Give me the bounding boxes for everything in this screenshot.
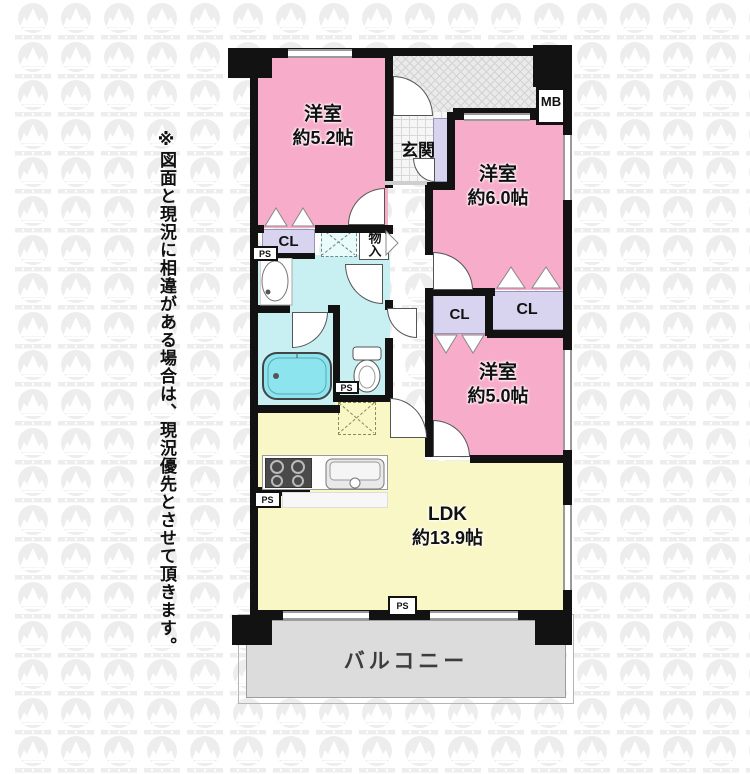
- folding-door-marker: [434, 334, 488, 354]
- floor-plan: PS PS PS PS MB 洋室 約5.2帖 洋室 約6.0帖 洋室 約5.0…: [0, 0, 750, 750]
- entrance-text: 玄関: [401, 136, 435, 161]
- window: [288, 49, 352, 58]
- ps-text: PS: [396, 601, 408, 611]
- wall: [425, 288, 433, 338]
- ps-text: PS: [261, 495, 273, 505]
- bathtub: [262, 352, 332, 400]
- window-balcony: [283, 611, 369, 620]
- wall-left: [250, 78, 258, 612]
- closet-label: CL: [262, 229, 315, 253]
- bedroom-1-label: 洋室 約5.2帖: [263, 100, 383, 152]
- pipe-space-label: PS: [334, 381, 359, 394]
- wall: [385, 338, 393, 400]
- ps-text: PS: [340, 383, 352, 393]
- pipe-space-label: PS: [388, 596, 417, 616]
- mb-text: MB: [541, 94, 561, 109]
- x-mark: [339, 403, 374, 433]
- window: [464, 113, 530, 121]
- wall: [333, 395, 390, 402]
- stove: [265, 458, 312, 488]
- room-size: 約13.9帖: [412, 527, 483, 550]
- wall: [250, 405, 340, 413]
- cl-text: CL: [279, 233, 299, 250]
- window: [563, 135, 572, 200]
- wall: [425, 334, 433, 457]
- room-size: 約5.0帖: [467, 385, 528, 408]
- wall-corner: [535, 615, 572, 645]
- wall: [385, 48, 393, 188]
- ldk-door-arc: [390, 398, 427, 438]
- disclaimer-text: ※図面と現況に相違がある場合は、現況優先とさせて頂きます。: [136, 130, 176, 655]
- room-name: 洋室: [479, 163, 517, 187]
- balcony-label: バルコニー: [246, 646, 566, 674]
- room-size: 約6.0帖: [467, 187, 528, 210]
- window-balcony: [430, 611, 518, 620]
- wall: [470, 455, 572, 463]
- wall: [487, 330, 572, 338]
- wall-corner: [533, 45, 572, 87]
- entrance-step: [385, 181, 427, 185]
- cl-text: CL: [450, 306, 470, 323]
- room-name: 洋室: [304, 103, 342, 127]
- window: [563, 505, 572, 590]
- ldk-floor: [258, 410, 335, 610]
- storage-text: 物入: [368, 231, 381, 257]
- bedroom-3-label: 洋室 約5.0帖: [443, 358, 553, 410]
- closet-label: CL: [490, 292, 564, 328]
- folding-door-marker: [496, 266, 562, 289]
- room-name: 洋室: [479, 361, 517, 385]
- kitchen-sink: [325, 458, 385, 490]
- balcony-text: バルコニー: [344, 645, 469, 675]
- washbasin: [260, 258, 294, 306]
- wall: [385, 48, 540, 56]
- storage-label: 物入: [360, 228, 388, 260]
- entrance-label: 玄関: [390, 136, 446, 160]
- meter-box-label: MB: [537, 89, 565, 113]
- fridge-space: [338, 402, 376, 435]
- ldk-label: LDK 約13.9帖: [380, 498, 515, 554]
- bedroom-2-label: 洋室 約6.0帖: [443, 160, 553, 212]
- cl-text: CL: [516, 301, 537, 319]
- floorplan-page: { "disclaimer": "※図面と現況に相違がある場合は、現況優先とさせ…: [0, 0, 750, 750]
- window: [563, 350, 572, 450]
- closet-label: CL: [433, 296, 486, 332]
- room-name: LDK: [428, 503, 467, 527]
- wall-corner: [232, 615, 272, 645]
- wall: [250, 305, 290, 313]
- wall: [425, 188, 433, 255]
- toilet-door-arc: [387, 308, 417, 338]
- room-size: 約5.2帖: [292, 127, 353, 150]
- pipe-space-label: PS: [254, 491, 281, 508]
- folding-door-marker: [264, 207, 318, 227]
- counter-edge: [282, 492, 388, 508]
